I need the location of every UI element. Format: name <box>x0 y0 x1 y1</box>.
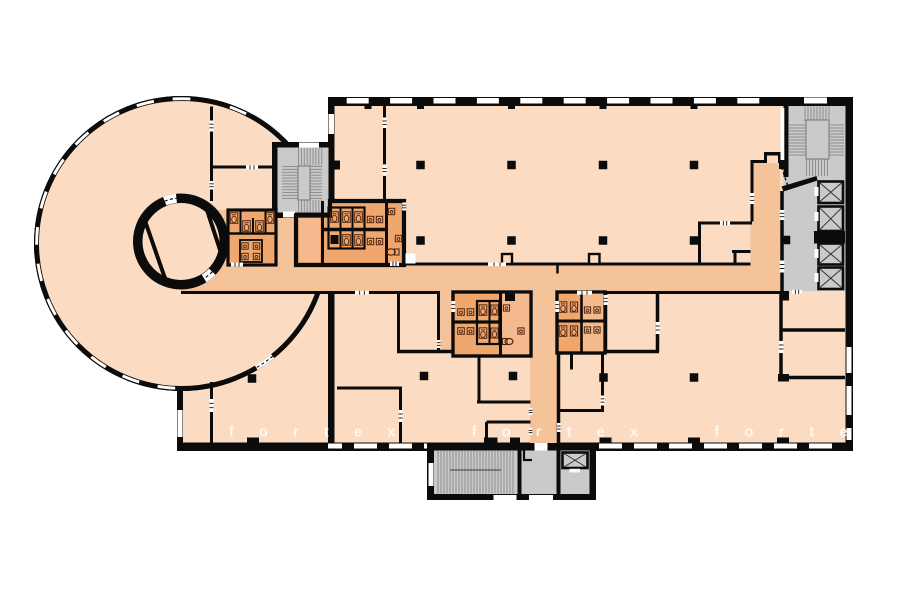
svg-text:fortex fortex forte: fortex fortex forte <box>229 425 873 441</box>
